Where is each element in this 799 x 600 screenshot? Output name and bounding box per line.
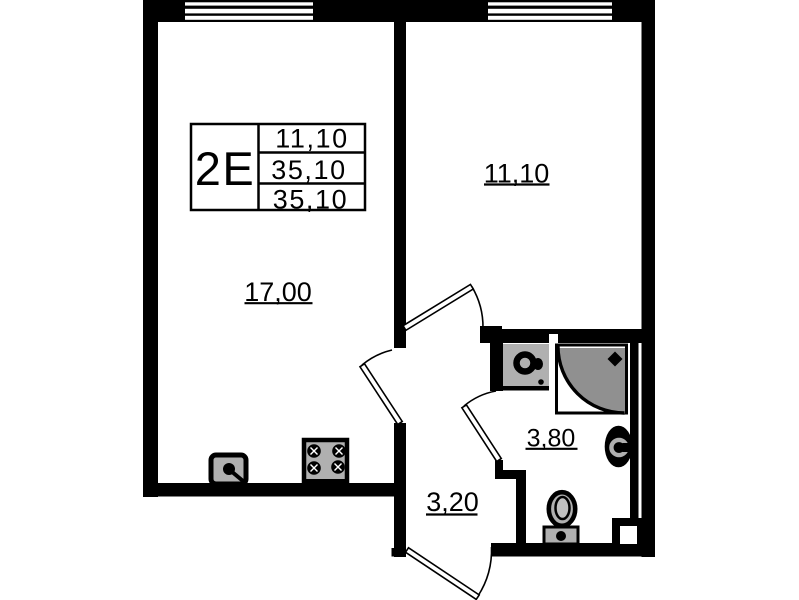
svg-text:3,20: 3,20 xyxy=(426,487,479,517)
svg-text:11,10: 11,10 xyxy=(275,124,349,154)
svg-text:35,10: 35,10 xyxy=(271,155,347,185)
svg-text:35,10: 35,10 xyxy=(273,185,349,215)
svg-text:2E: 2E xyxy=(195,142,256,195)
